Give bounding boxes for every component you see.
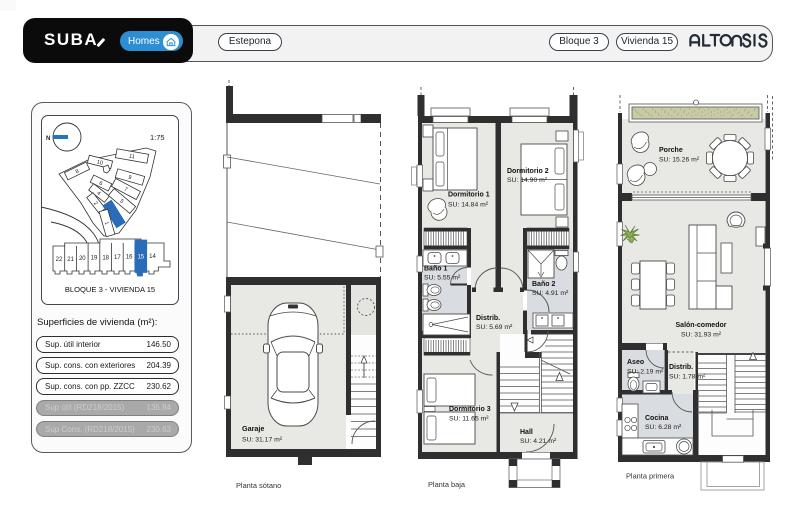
svg-text:Porche: Porche: [659, 147, 683, 154]
svg-text:SU: 14.90 m²: SU: 14.90 m²: [507, 177, 548, 184]
svg-text:SU: 6.28 m²: SU: 6.28 m²: [645, 424, 682, 431]
svg-text:SU: 31.93 m²: SU: 31.93 m²: [681, 332, 722, 339]
svg-text:SU: 15.26 m²: SU: 15.26 m²: [659, 157, 700, 164]
svg-text:SU: 5.55 m²: SU: 5.55 m²: [424, 275, 461, 282]
svg-text:Baño 1: Baño 1: [424, 266, 447, 273]
svg-text:1:75: 1:75: [150, 133, 165, 142]
svg-text:N: N: [46, 136, 50, 142]
svg-text:SU: 11.65 m²: SU: 11.65 m²: [449, 416, 489, 423]
svg-text:15: 15: [137, 255, 144, 261]
svg-text:SU: 2.19 m²: SU: 2.19 m²: [627, 369, 664, 376]
svg-text:Planta primera: Planta primera: [626, 472, 675, 481]
svg-text:21: 21: [67, 257, 74, 263]
svg-text:SU: 4.91 m²: SU: 4.91 m²: [532, 290, 569, 297]
svg-text:18: 18: [102, 256, 109, 262]
svg-text:14: 14: [149, 254, 156, 260]
svg-text:Distrib.: Distrib.: [476, 315, 500, 322]
svg-text:20: 20: [79, 256, 86, 262]
svg-text:BLOQUE 3 - VIVIENDA 15: BLOQUE 3 - VIVIENDA 15: [65, 285, 155, 294]
svg-text:SU: 31.17 m²: SU: 31.17 m²: [242, 437, 283, 444]
svg-text:Hall: Hall: [520, 429, 533, 436]
svg-text:Aseo: Aseo: [627, 359, 644, 366]
svg-text:SU: 14.84 m²: SU: 14.84 m²: [448, 202, 489, 209]
svg-text:22: 22: [56, 257, 63, 263]
svg-text:19: 19: [91, 256, 98, 262]
svg-text:SU: 5.69 m²: SU: 5.69 m²: [476, 324, 513, 331]
svg-text:Dormitorio 2: Dormitorio 2: [507, 168, 549, 175]
svg-text:Planta baja: Planta baja: [428, 480, 466, 489]
svg-text:Planta sótano: Planta sótano: [236, 481, 281, 490]
svg-text:11: 11: [128, 154, 135, 161]
svg-text:Dormitorio 3: Dormitorio 3: [449, 406, 491, 413]
svg-text:Garaje: Garaje: [242, 424, 264, 433]
svg-text:17: 17: [114, 255, 121, 261]
svg-text:Salón-comedor: Salón-comedor: [676, 322, 727, 329]
svg-text:Distrib.: Distrib.: [669, 364, 693, 371]
svg-text:Baño 2: Baño 2: [532, 281, 555, 288]
svg-text:SU: 4.21 m²: SU: 4.21 m²: [520, 438, 557, 445]
svg-text:Cocina: Cocina: [645, 415, 668, 422]
svg-text:Dormitorio 1: Dormitorio 1: [448, 192, 490, 199]
svg-text:16: 16: [126, 255, 133, 261]
